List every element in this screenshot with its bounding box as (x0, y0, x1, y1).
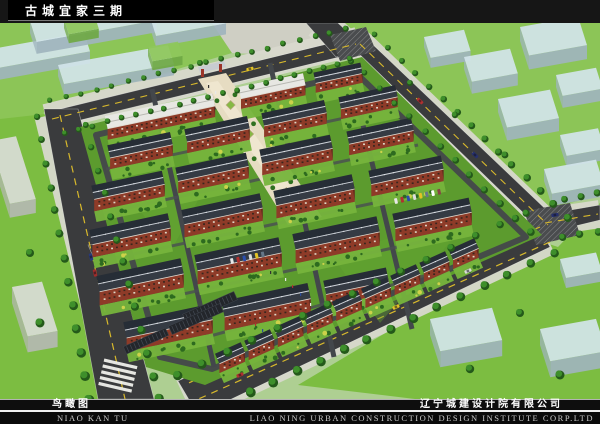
footer-title-band: 鸟瞰图 辽宁城建设计院有限公司 (0, 399, 600, 410)
title-box: 古城宜家三期 (8, 0, 214, 21)
title-bar: 古城宜家三期 (0, 0, 600, 23)
presentation-board: 古城宜家三期 鸟瞰图 辽宁城建设计院有限公司 NIAO KAN TU LIAO … (0, 0, 600, 424)
view-label-en: NIAO KAN TU (57, 414, 129, 423)
company-name-en: LIAO NING URBAN CONSTRUCTION DESIGN INST… (250, 414, 594, 423)
view-label-cn: 鸟瞰图 (52, 400, 91, 410)
project-title: 古城宜家三期 (25, 2, 127, 19)
footer-subtitle-band: NIAO KAN TU LIAO NING URBAN CONSTRUCTION… (0, 412, 600, 424)
aerial-rendering (0, 23, 600, 399)
company-name-cn: 辽宁城建设计院有限公司 (420, 400, 563, 410)
